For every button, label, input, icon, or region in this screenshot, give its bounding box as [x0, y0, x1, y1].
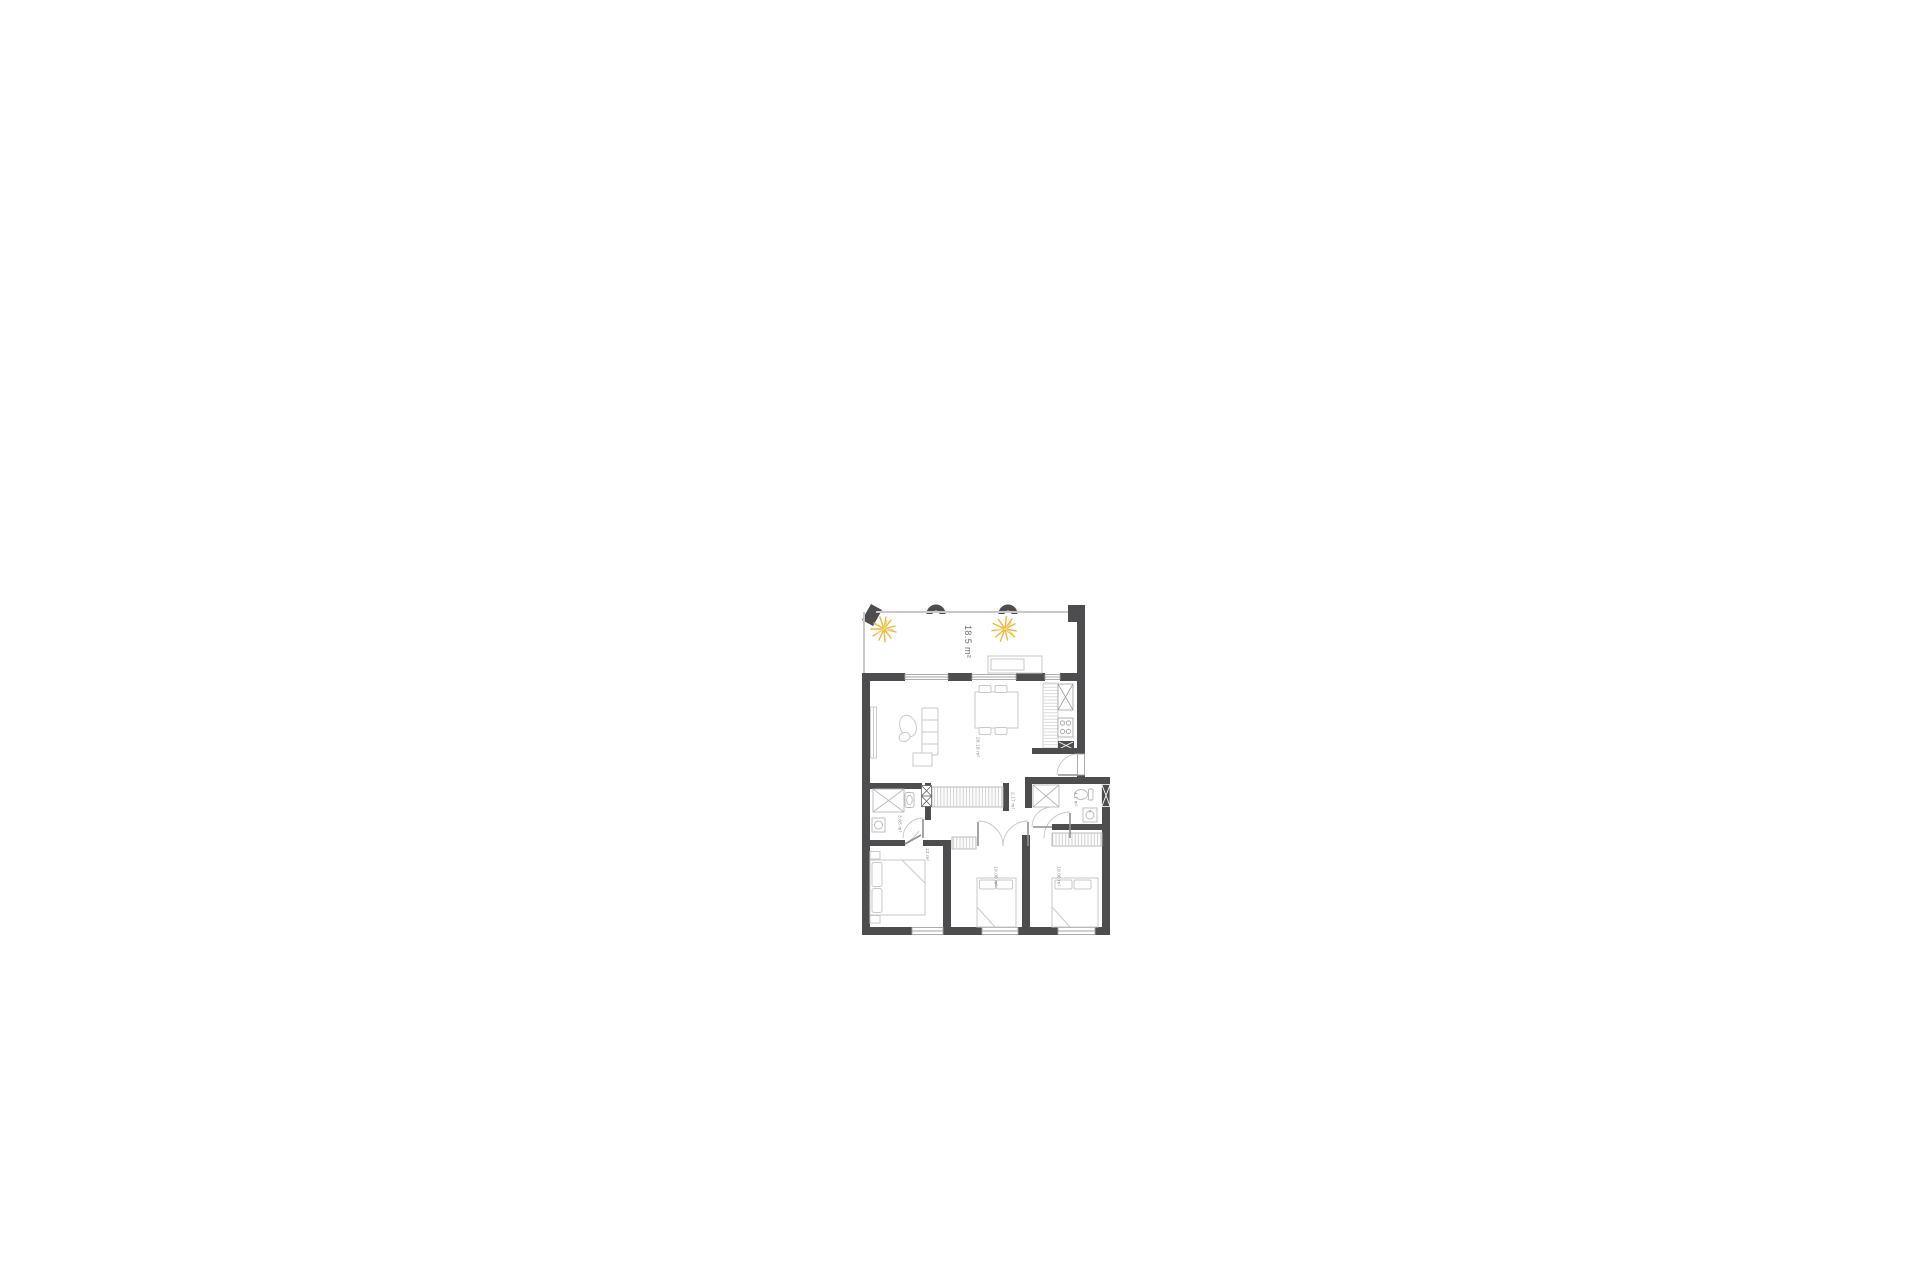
terrace-divider-wall: [862, 673, 905, 681]
wc-left-wall: [1025, 784, 1032, 808]
outer-wall-bottom: [943, 927, 982, 935]
floor-plan: 18.5 m² 28.18 m² 2.17 m² 4.1 m² 3.65 m² …: [856, 596, 1112, 940]
kitchen-counter: [1043, 683, 1058, 748]
terrace-divider-wall: [948, 673, 972, 681]
sink-basin: [907, 796, 913, 805]
wardrobe-right-bedroom: [1052, 833, 1102, 846]
area-label-hall: 2.17 m²: [1010, 792, 1016, 810]
kitchen-bottom-wall: [1032, 748, 1077, 754]
hall-wall-stub: [1003, 783, 1009, 811]
dining-chair: [979, 686, 991, 693]
stove-icon: [1058, 718, 1073, 737]
divider-left-middle: [943, 845, 951, 927]
area-label-living: 28.18 m²: [975, 737, 981, 757]
door-leaf: [905, 835, 921, 844]
dining-chair: [995, 728, 1007, 735]
area-label-bathroom: 3.65 m²: [897, 815, 903, 833]
column-icon: [930, 608, 943, 615]
toilet-tank: [1089, 789, 1094, 800]
coffee-table: [913, 753, 932, 766]
divider-middle-right: [1022, 835, 1030, 927]
area-label-wc: 4.1 m²: [1073, 792, 1079, 807]
duct: [1102, 785, 1111, 807]
washing-machine: [872, 818, 885, 832]
kitchen-appliances: [1058, 684, 1073, 737]
area-label-bedroom-left: 12 m²: [924, 848, 930, 861]
bedroom-left-top-wall: [862, 840, 905, 846]
wc-top-wall: [1025, 777, 1110, 784]
outer-wall-bottom: [862, 927, 912, 935]
wc-bottom-wall: [1052, 824, 1110, 830]
area-label-bedroom-right: 10.08 m²: [1056, 866, 1062, 886]
plant-icon: [988, 613, 1021, 646]
terrace-divider-wall: [1060, 673, 1085, 681]
pillow: [872, 863, 882, 887]
dining-chair: [995, 686, 1007, 693]
nightstand: [870, 916, 880, 924]
utility-shaft: [922, 786, 932, 807]
dining-table: [975, 692, 1018, 728]
terrace-columns: [930, 608, 1015, 615]
pillow: [997, 880, 1013, 889]
living-bottom-wall: [870, 783, 922, 789]
entry-door-arc: [1057, 754, 1078, 775]
wardrobe-middle-bedroom: [952, 837, 976, 849]
area-label-bedroom-middle: 10.08 m²: [993, 866, 999, 886]
terrace-corner-block-right: [1068, 605, 1085, 622]
pillow: [1074, 880, 1091, 889]
terrace-table-inner: [991, 659, 1024, 670]
wc-door-arc: [1032, 807, 1052, 827]
area-label-terrace: 18.5 m²: [963, 625, 973, 658]
outer-wall-left: [862, 673, 870, 935]
bedroom-middle-door-arc: [978, 821, 1003, 846]
entry-opening: [1078, 754, 1085, 775]
column-icon: [1002, 608, 1015, 615]
nightstand: [870, 852, 880, 860]
terrace-divider-wall: [1016, 673, 1045, 681]
hall-closet: [932, 787, 1003, 807]
outer-wall-bottom: [1018, 927, 1058, 935]
pillow: [872, 889, 882, 913]
page: 18.5 m² 28.18 m² 2.17 m² 4.1 m² 3.65 m² …: [0, 0, 1920, 1280]
terrace-plants: [871, 613, 1021, 646]
dining-chair: [979, 728, 991, 735]
